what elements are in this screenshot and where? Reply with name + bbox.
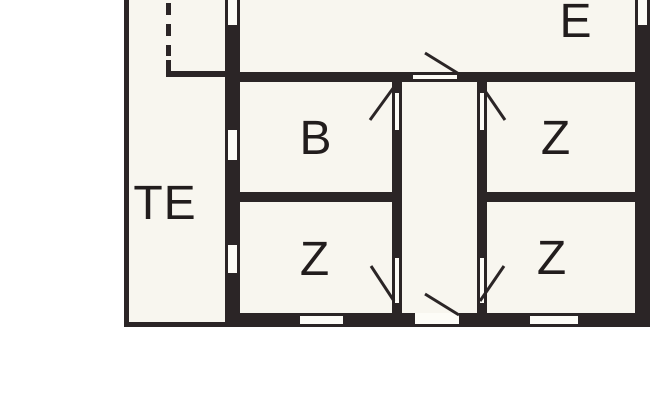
door-jamb — [399, 258, 402, 303]
window-jamb — [225, 245, 228, 273]
window-jamb — [300, 324, 343, 327]
door-jamb — [484, 93, 487, 130]
door-jamb — [413, 72, 457, 75]
room-label-te: TE — [133, 180, 196, 228]
wall-hall-left-stub-top — [392, 82, 402, 93]
window-jamb — [635, 0, 638, 25]
wall-hall-left-mid — [392, 130, 402, 258]
window-jamb — [237, 0, 240, 25]
wall-hall-right-stub-top — [477, 82, 487, 93]
wall-hall-right-mid — [477, 130, 487, 258]
window-jamb — [530, 313, 578, 316]
wall-divider-right — [487, 192, 635, 202]
terrace-dashed-line-segment — [166, 45, 171, 56]
room-label-z-top-right: Z — [541, 115, 571, 163]
floor-plan: TE E B Z Z Z — [0, 0, 650, 420]
door-jamb — [413, 79, 457, 82]
terrace-dashed-line-segment — [166, 24, 171, 36]
room-label-z-bottom-right: Z — [537, 235, 567, 283]
terrace-dashed-line-segment — [166, 3, 171, 15]
room-label-e: E — [559, 0, 592, 46]
door-jamb — [477, 258, 480, 303]
window-jamb — [530, 324, 578, 327]
room-label-z-bottom-left: Z — [300, 236, 330, 284]
wall-divider-left — [240, 192, 392, 202]
wall-outer-left — [225, 0, 240, 327]
door-jamb — [399, 93, 402, 130]
door-jamb — [484, 258, 487, 303]
wall-outer-right — [635, 0, 650, 327]
door-jamb — [477, 93, 480, 130]
terrace-top-line — [166, 71, 227, 77]
wall-hall-right-stub-bottom — [477, 303, 487, 315]
terrace-bottom-edge — [124, 322, 227, 327]
terrace-left-edge — [124, 0, 129, 327]
door-jamb — [392, 93, 395, 130]
window-jamb — [225, 0, 228, 25]
door-jamb — [392, 258, 395, 303]
window-jamb — [300, 313, 343, 316]
window-jamb — [225, 130, 228, 160]
wall-hall-left-stub-bottom — [392, 303, 402, 315]
door-threshold — [415, 324, 459, 327]
room-label-b: B — [299, 115, 332, 163]
window-jamb — [237, 245, 240, 273]
window-jamb — [237, 130, 240, 160]
